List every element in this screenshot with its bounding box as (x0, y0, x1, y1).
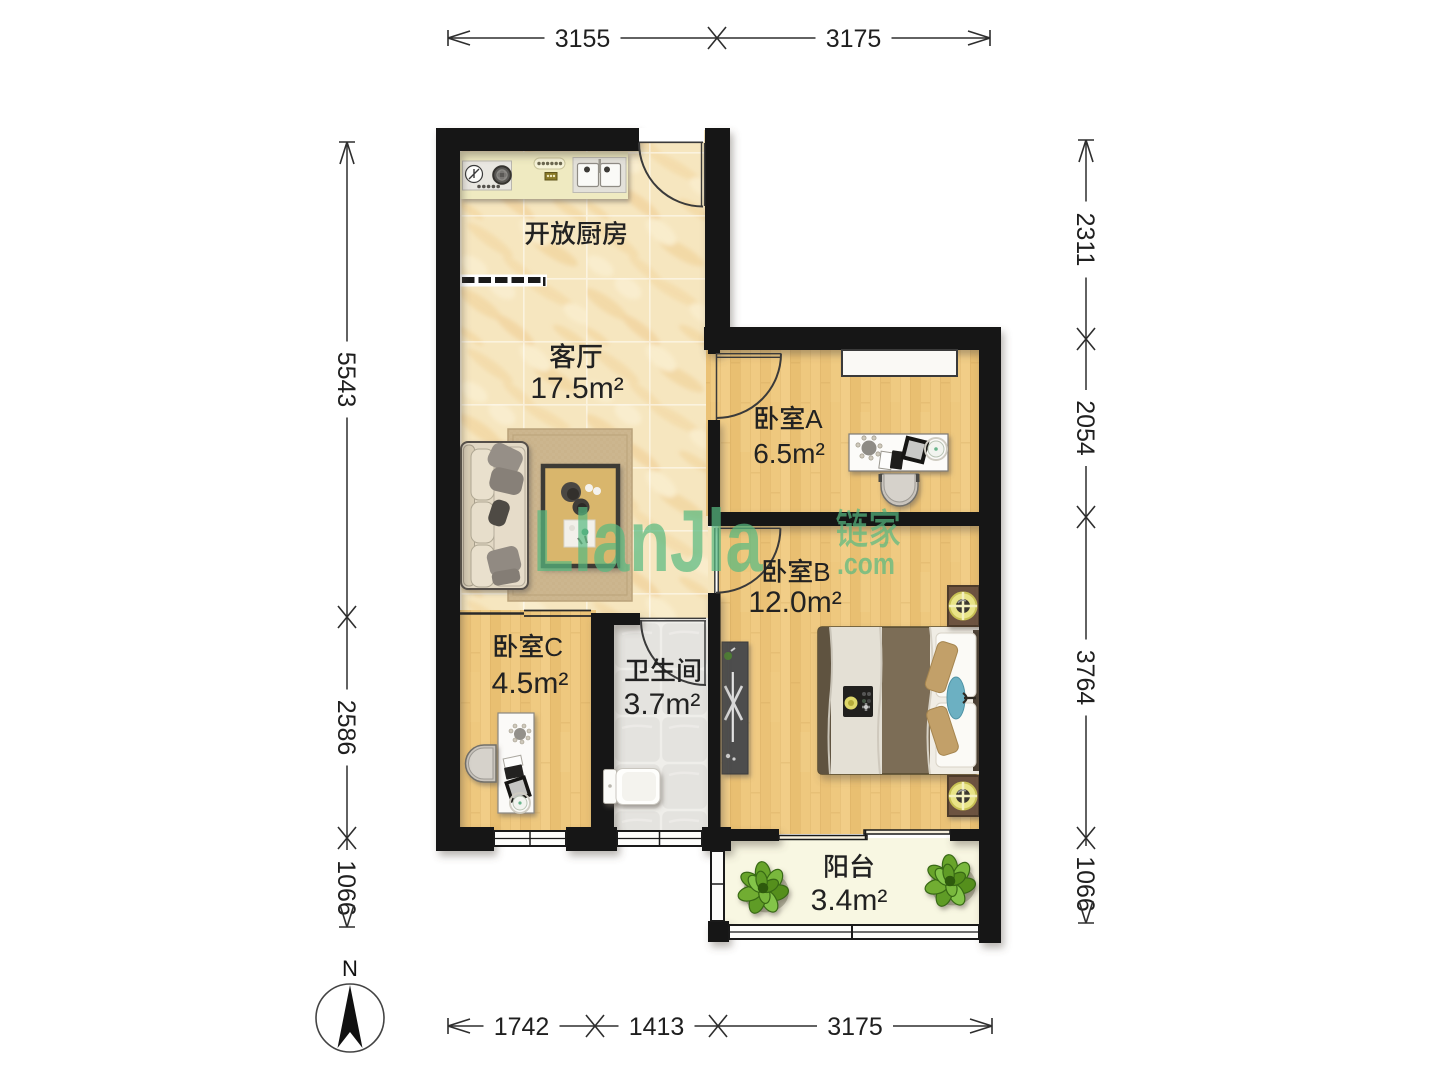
svg-text:3764: 3764 (1071, 650, 1099, 706)
svg-text:4.5m²: 4.5m² (492, 667, 569, 700)
svg-text:1066: 1066 (1071, 856, 1099, 912)
svg-text:N: N (342, 956, 358, 981)
svg-text:3175: 3175 (826, 25, 882, 53)
svg-text:3.7m²: 3.7m² (624, 688, 701, 721)
svg-text:3.4m²: 3.4m² (811, 884, 888, 917)
svg-text:2586: 2586 (332, 700, 360, 756)
svg-text:.com: .com (837, 546, 895, 580)
svg-text:LlanJla: LlanJla (533, 491, 763, 590)
svg-text:5543: 5543 (332, 352, 360, 408)
svg-text:1066: 1066 (332, 860, 360, 916)
svg-text:17.5m²: 17.5m² (530, 372, 623, 405)
svg-text:2311: 2311 (1071, 213, 1099, 267)
svg-text:C: C (544, 632, 563, 662)
svg-text:1742: 1742 (494, 1013, 550, 1041)
svg-text:12.0m²: 12.0m² (748, 586, 841, 619)
svg-text:B: B (813, 557, 830, 587)
svg-text:6.5m²: 6.5m² (753, 438, 825, 469)
svg-text:A: A (805, 404, 823, 434)
svg-text:1413: 1413 (629, 1013, 685, 1041)
svg-text:2054: 2054 (1071, 400, 1099, 456)
svg-text:3155: 3155 (555, 25, 611, 53)
svg-text:3175: 3175 (827, 1013, 883, 1041)
